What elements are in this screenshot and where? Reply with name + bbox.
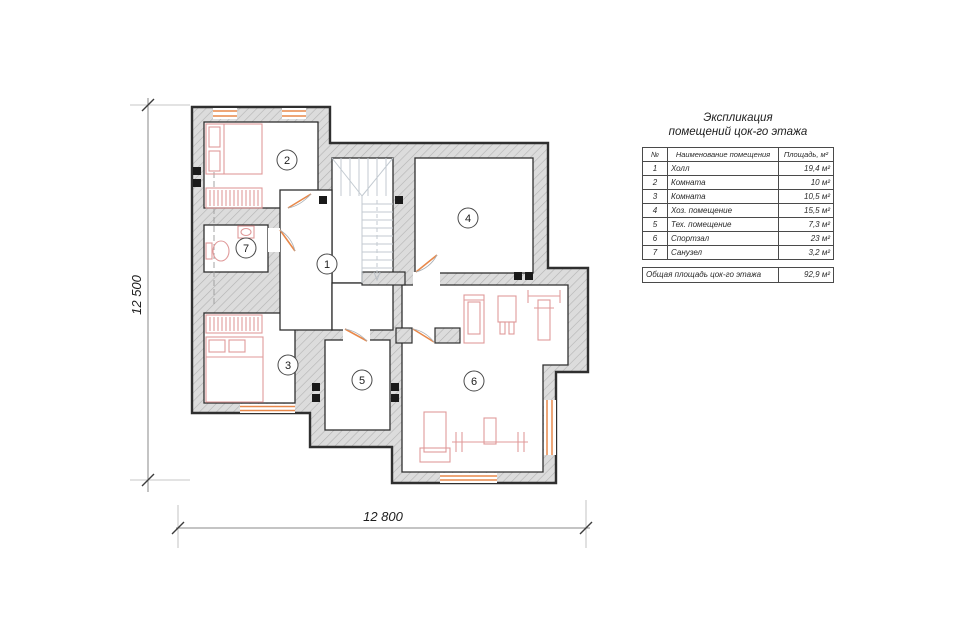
window-icon <box>544 400 556 455</box>
row-num: 2 <box>643 175 668 189</box>
legend-title-line2: помещений цок-го этажа <box>642 126 834 140</box>
page: { "plan": { "dimensions": { "height_labe… <box>0 0 960 624</box>
row-area: 7,3 м² <box>779 217 834 231</box>
table-row: 6 Спортзал 23 м² <box>643 231 834 245</box>
table-row: 1 Холл 19,4 м² <box>643 161 834 175</box>
row-area: 15,5 м² <box>779 203 834 217</box>
row-name: Санузел <box>668 245 779 259</box>
table-row: 4 Хоз. помещение 15,5 м² <box>643 203 834 217</box>
table-row: 2 Комната 10 м² <box>643 175 834 189</box>
explication-table: № Наименование помещения Площадь, м² 1 Х… <box>642 147 834 260</box>
row-name: Холл <box>668 161 779 175</box>
dimension-vertical: 12 500 <box>129 98 190 492</box>
total-row: Общая площадь цок-го этажа 92,9 м² <box>643 267 834 282</box>
width-dimension-label: 12 800 <box>363 509 404 524</box>
row-num: 4 <box>643 203 668 217</box>
table-row: 3 Комната 10,5 м² <box>643 189 834 203</box>
legend-title-line1: Экспликация <box>642 112 834 126</box>
row-name: Спортзал <box>668 231 779 245</box>
row-num: 1 <box>643 161 668 175</box>
explication-legend: Экспликация помещений цок-го этажа № Наи… <box>642 112 834 283</box>
row-num: 6 <box>643 231 668 245</box>
room-number: 3 <box>285 360 291 372</box>
room-label-1: 1 <box>317 254 337 274</box>
window-icon <box>213 108 237 119</box>
row-name: Хоз. помещение <box>668 203 779 217</box>
window-icon <box>282 108 306 119</box>
total-area-table: Общая площадь цок-го этажа 92,9 м² <box>642 267 834 283</box>
row-num: 7 <box>643 245 668 259</box>
room-label-3: 3 <box>278 355 298 375</box>
row-area: 23 м² <box>779 231 834 245</box>
window-icon <box>240 404 295 413</box>
total-label: Общая площадь цок-го этажа <box>643 267 779 282</box>
dimension-horizontal: 12 800 <box>172 500 592 548</box>
row-area: 10,5 м² <box>779 189 834 203</box>
room-label-6: 6 <box>464 371 484 391</box>
col-header-area: Площадь, м² <box>779 147 834 161</box>
table-header-row: № Наименование помещения Площадь, м² <box>643 147 834 161</box>
col-header-num: № <box>643 147 668 161</box>
room-number: 6 <box>471 376 477 388</box>
floor-plan: 1 2 3 4 5 6 7 12 500 <box>0 0 640 624</box>
row-name: Тех. помещение <box>668 217 779 231</box>
wardrobe-icon <box>206 188 262 208</box>
row-area: 3,2 м² <box>779 245 834 259</box>
room-number: 7 <box>243 243 249 255</box>
room-number: 2 <box>284 155 290 167</box>
room-number: 1 <box>324 259 330 271</box>
floor-plan-drawing: 1 2 3 4 5 6 7 12 500 <box>0 0 640 624</box>
room-label-2: 2 <box>277 150 297 170</box>
wardrobe-icon <box>206 315 262 333</box>
row-num: 3 <box>643 189 668 203</box>
legend-title: Экспликация помещений цок-го этажа <box>642 112 834 140</box>
room-number: 4 <box>465 213 471 225</box>
room-label-4: 4 <box>458 208 478 228</box>
row-area: 19,4 м² <box>779 161 834 175</box>
row-name: Комната <box>668 189 779 203</box>
table-row: 5 Тех. помещение 7,3 м² <box>643 217 834 231</box>
col-header-name: Наименование помещения <box>668 147 779 161</box>
room-label-7: 7 <box>236 238 256 258</box>
row-name: Комната <box>668 175 779 189</box>
room-label-5: 5 <box>352 370 372 390</box>
total-area: 92,9 м² <box>779 267 834 282</box>
room-number: 5 <box>359 375 365 387</box>
hall-center-area <box>332 283 393 330</box>
window-icon <box>440 473 497 483</box>
row-num: 5 <box>643 217 668 231</box>
row-area: 10 м² <box>779 175 834 189</box>
table-row: 7 Санузел 3,2 м² <box>643 245 834 259</box>
height-dimension-label: 12 500 <box>129 274 144 315</box>
